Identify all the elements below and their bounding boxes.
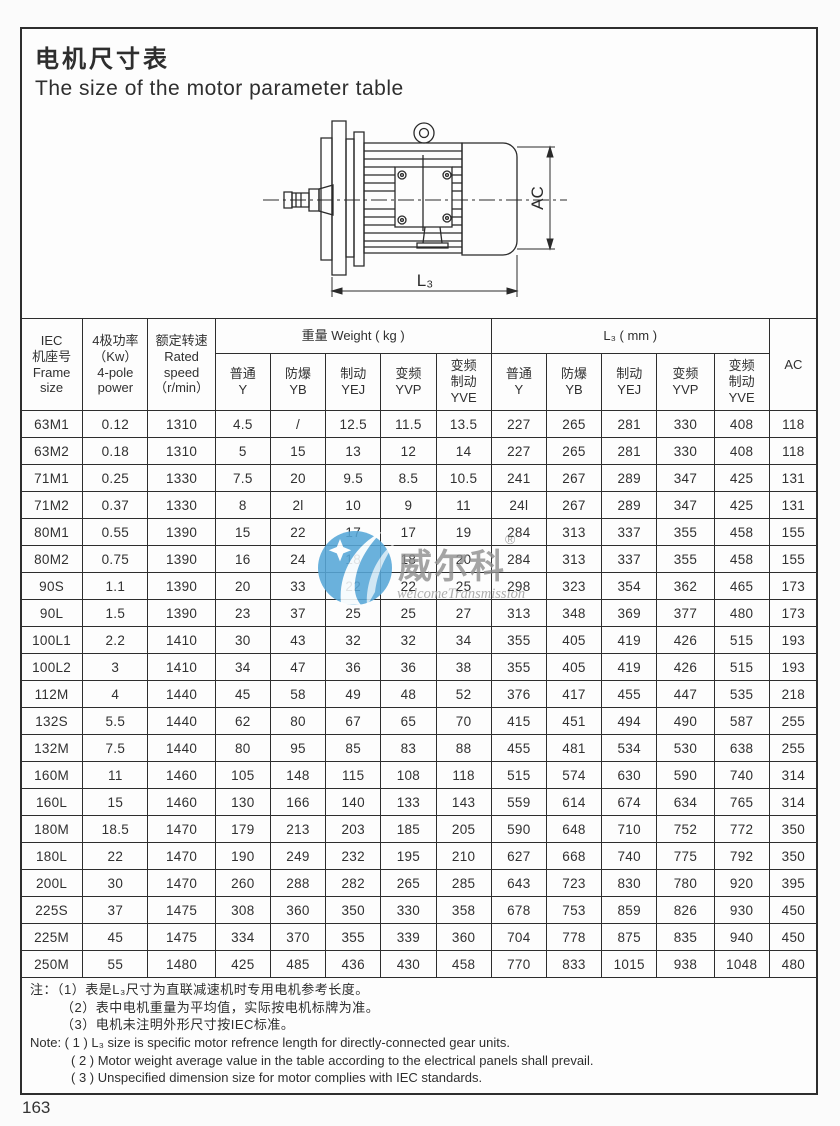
value-cell: 8.5 xyxy=(381,465,436,492)
value-cell: 752 xyxy=(657,816,714,843)
value-cell: 323 xyxy=(546,573,601,600)
lifting-eye-icon xyxy=(414,123,434,143)
value-cell: 678 xyxy=(491,897,546,924)
value-cell: 1390 xyxy=(148,519,215,546)
value-cell: 179 xyxy=(215,816,270,843)
table-body: 63M10.1213104.5/12.511.513.5227265281330… xyxy=(21,411,818,978)
value-cell: 458 xyxy=(714,519,769,546)
frame-size-cell: 180L xyxy=(21,843,83,870)
value-cell: 458 xyxy=(714,546,769,573)
value-cell: 227 xyxy=(491,438,546,465)
motor-flange xyxy=(321,121,364,275)
note-cn-2: （2）表中电机重量为平均值，实际按电机标牌为准。 xyxy=(30,999,810,1017)
header-l3-yej: 制动 YEJ xyxy=(602,354,657,411)
header-l3-yve: 变频 制动 YVE xyxy=(714,354,769,411)
value-cell: 330 xyxy=(657,411,714,438)
frame-size-cell: 132S xyxy=(21,708,83,735)
frame-size-cell: 90S xyxy=(21,573,83,600)
value-cell: 155 xyxy=(769,519,817,546)
value-cell: 360 xyxy=(270,897,325,924)
value-cell: 1440 xyxy=(148,681,215,708)
value-cell: 480 xyxy=(714,600,769,627)
value-cell: 227 xyxy=(491,411,546,438)
value-cell: 1310 xyxy=(148,411,215,438)
value-cell: 118 xyxy=(436,762,491,789)
value-cell: 355 xyxy=(491,627,546,654)
value-cell: 7.5 xyxy=(83,735,148,762)
value-cell: 284 xyxy=(491,546,546,573)
value-cell: 362 xyxy=(657,573,714,600)
value-cell: 1460 xyxy=(148,789,215,816)
value-cell: 24l xyxy=(491,492,546,519)
value-cell: 25 xyxy=(436,573,491,600)
value-cell: 1330 xyxy=(148,465,215,492)
value-cell: 143 xyxy=(436,789,491,816)
value-cell: 0.55 xyxy=(83,519,148,546)
value-cell: 9.5 xyxy=(326,465,381,492)
value-cell: 330 xyxy=(657,438,714,465)
value-cell: 33 xyxy=(270,573,325,600)
value-cell: 232 xyxy=(326,843,381,870)
table-row: 180L221470190249232195210627668740775792… xyxy=(21,843,818,870)
value-cell: 284 xyxy=(491,519,546,546)
value-cell: 740 xyxy=(602,843,657,870)
value-cell: 376 xyxy=(491,681,546,708)
value-cell: 938 xyxy=(657,951,714,978)
value-cell: 13 xyxy=(326,438,381,465)
value-cell: 95 xyxy=(270,735,325,762)
header-speed: 额定转速 Rated speed （r/min） xyxy=(148,319,215,411)
value-cell: 15 xyxy=(270,438,325,465)
value-cell: 405 xyxy=(546,654,601,681)
value-cell: 148 xyxy=(270,762,325,789)
value-cell: 648 xyxy=(546,816,601,843)
value-cell: 590 xyxy=(657,762,714,789)
value-cell: 314 xyxy=(769,762,817,789)
value-cell: 339 xyxy=(381,924,436,951)
value-cell: 32 xyxy=(326,627,381,654)
value-cell: 426 xyxy=(657,627,714,654)
value-cell: 0.12 xyxy=(83,411,148,438)
value-cell: 282 xyxy=(326,870,381,897)
value-cell: 826 xyxy=(657,897,714,924)
frame-size-cell: 225M xyxy=(21,924,83,951)
value-cell: 45 xyxy=(83,924,148,951)
value-cell: 166 xyxy=(270,789,325,816)
value-cell: 313 xyxy=(491,600,546,627)
value-cell: 0.75 xyxy=(83,546,148,573)
value-cell: 32 xyxy=(381,627,436,654)
table-row: 132M7.514408095858388455481534530638255 xyxy=(21,735,818,762)
table-row: 90S1.113902033222225298323354362465173 xyxy=(21,573,818,600)
value-cell: 614 xyxy=(546,789,601,816)
value-cell: 710 xyxy=(602,816,657,843)
value-cell: 20 xyxy=(270,465,325,492)
value-cell: 36 xyxy=(381,654,436,681)
value-cell: 289 xyxy=(602,492,657,519)
value-cell: 920 xyxy=(714,870,769,897)
value-cell: 354 xyxy=(602,573,657,600)
value-cell: 255 xyxy=(769,735,817,762)
value-cell: 530 xyxy=(657,735,714,762)
frame-size-cell: 160M xyxy=(21,762,83,789)
value-cell: 419 xyxy=(602,627,657,654)
table-row: 250M551480425485436430458770833101593810… xyxy=(21,951,818,978)
value-cell: 559 xyxy=(491,789,546,816)
value-cell: 249 xyxy=(270,843,325,870)
value-cell: 27 xyxy=(436,600,491,627)
value-cell: 1470 xyxy=(148,816,215,843)
value-cell: 14 xyxy=(436,438,491,465)
page-title: 电机尺寸表 xyxy=(35,39,816,74)
value-cell: 313 xyxy=(546,546,601,573)
value-cell: 118 xyxy=(769,411,817,438)
value-cell: 314 xyxy=(769,789,817,816)
value-cell: 193 xyxy=(769,627,817,654)
value-cell: 133 xyxy=(381,789,436,816)
value-cell: 62 xyxy=(215,708,270,735)
value-cell: 281 xyxy=(602,438,657,465)
value-cell: 195 xyxy=(381,843,436,870)
value-cell: 451 xyxy=(546,708,601,735)
frame-size-cell: 180M xyxy=(21,816,83,843)
value-cell: 450 xyxy=(769,924,817,951)
value-cell: 38 xyxy=(436,654,491,681)
value-cell: 415 xyxy=(491,708,546,735)
value-cell: 83 xyxy=(381,735,436,762)
value-cell: 334 xyxy=(215,924,270,951)
frame-size-cell: 100L1 xyxy=(21,627,83,654)
value-cell: 298 xyxy=(491,573,546,600)
frame-size-cell: 80M2 xyxy=(21,546,83,573)
frame-size-cell: 100L2 xyxy=(21,654,83,681)
value-cell: 265 xyxy=(546,411,601,438)
motor-end-cap xyxy=(462,143,517,255)
header-weight-yej: 制动 YEJ xyxy=(326,354,381,411)
value-cell: 308 xyxy=(215,897,270,924)
value-cell: 185 xyxy=(381,816,436,843)
value-cell: 1480 xyxy=(148,951,215,978)
value-cell: 58 xyxy=(270,681,325,708)
value-cell: 4 xyxy=(83,681,148,708)
frame-size-cell: 71M1 xyxy=(21,465,83,492)
value-cell: 425 xyxy=(714,465,769,492)
value-cell: 1470 xyxy=(148,870,215,897)
frame-size-cell: 112M xyxy=(21,681,83,708)
value-cell: 480 xyxy=(769,951,817,978)
table-row: 100L12.214103043323234355405419426515193 xyxy=(21,627,818,654)
value-cell: 330 xyxy=(381,897,436,924)
value-cell: 210 xyxy=(436,843,491,870)
value-cell: 355 xyxy=(326,924,381,951)
value-cell: 241 xyxy=(491,465,546,492)
header-l3-yvp: 变频 YVP xyxy=(657,354,714,411)
value-cell: 772 xyxy=(714,816,769,843)
value-cell: 430 xyxy=(381,951,436,978)
note-cn-3: （3）电机未注明外形尺寸按IEC标准。 xyxy=(30,1016,810,1034)
frame-size-cell: 132M xyxy=(21,735,83,762)
value-cell: 267 xyxy=(546,492,601,519)
value-cell: 19 xyxy=(436,519,491,546)
value-cell: 436 xyxy=(326,951,381,978)
value-cell: 778 xyxy=(546,924,601,951)
value-cell: 458 xyxy=(436,951,491,978)
value-cell: 255 xyxy=(769,708,817,735)
dimension-l3: L₃ xyxy=(332,255,517,297)
value-cell: 337 xyxy=(602,546,657,573)
value-cell: 16 xyxy=(215,546,270,573)
value-cell: 13.5 xyxy=(436,411,491,438)
value-cell: 80 xyxy=(215,735,270,762)
value-cell: 643 xyxy=(491,870,546,897)
dimension-ac: AC xyxy=(517,147,555,249)
value-cell: 369 xyxy=(602,600,657,627)
motor-body xyxy=(364,143,462,253)
value-cell: 395 xyxy=(769,870,817,897)
value-cell: 265 xyxy=(546,438,601,465)
value-cell: 1460 xyxy=(148,762,215,789)
value-cell: 22 xyxy=(270,519,325,546)
table-row: 200L301470260288282265285643723830780920… xyxy=(21,870,818,897)
value-cell: 205 xyxy=(436,816,491,843)
value-cell: 18 xyxy=(381,546,436,573)
value-cell: 1330 xyxy=(148,492,215,519)
value-cell: 377 xyxy=(657,600,714,627)
value-cell: 370 xyxy=(270,924,325,951)
value-cell: 22 xyxy=(83,843,148,870)
value-cell: 203 xyxy=(326,816,381,843)
value-cell: 285 xyxy=(436,870,491,897)
value-cell: 1410 xyxy=(148,654,215,681)
value-cell: 1470 xyxy=(148,843,215,870)
value-cell: 11 xyxy=(436,492,491,519)
value-cell: 630 xyxy=(602,762,657,789)
value-cell: 115 xyxy=(326,762,381,789)
header-weight-y: 普通 Y xyxy=(215,354,270,411)
value-cell: 2.2 xyxy=(83,627,148,654)
value-cell: 131 xyxy=(769,492,817,519)
value-cell: 313 xyxy=(546,519,601,546)
value-cell: 408 xyxy=(714,411,769,438)
value-cell: 88 xyxy=(436,735,491,762)
value-cell: 587 xyxy=(714,708,769,735)
value-cell: 140 xyxy=(326,789,381,816)
value-cell: 638 xyxy=(714,735,769,762)
frame-size-cell: 90L xyxy=(21,600,83,627)
value-cell: 37 xyxy=(83,897,148,924)
table-row: 80M10.5513901522171719284313337355458155 xyxy=(21,519,818,546)
value-cell: 55 xyxy=(83,951,148,978)
frame-size-cell: 71M2 xyxy=(21,492,83,519)
page-frame: 电机尺寸表 The size of the motor parameter ta… xyxy=(20,27,818,1095)
value-cell: 23 xyxy=(215,600,270,627)
value-cell: 118 xyxy=(769,438,817,465)
value-cell: 18 xyxy=(326,546,381,573)
value-cell: 515 xyxy=(714,654,769,681)
value-cell: 213 xyxy=(270,816,325,843)
value-cell: 494 xyxy=(602,708,657,735)
value-cell: 265 xyxy=(381,870,436,897)
value-cell: 833 xyxy=(546,951,601,978)
value-cell: 1390 xyxy=(148,573,215,600)
value-cell: 9 xyxy=(381,492,436,519)
value-cell: 590 xyxy=(491,816,546,843)
header-weight-group: 重量 Weight ( kg ) xyxy=(215,319,491,354)
value-cell: 267 xyxy=(546,465,601,492)
motor-parameter-table: IEC 机座号 Frame size 4极功率 （Kw） 4-pole powe… xyxy=(20,318,818,978)
value-cell: 355 xyxy=(491,654,546,681)
terminal-box xyxy=(395,155,452,231)
note-en-2: ( 2 ) Motor weight average value in the … xyxy=(30,1052,810,1070)
value-cell: 24 xyxy=(270,546,325,573)
value-cell: 875 xyxy=(602,924,657,951)
motor-drawing: AC L₃ xyxy=(255,105,595,317)
value-cell: 17 xyxy=(381,519,436,546)
frame-size-cell: 200L xyxy=(21,870,83,897)
value-cell: 1390 xyxy=(148,546,215,573)
header-l3-y: 普通 Y xyxy=(491,354,546,411)
value-cell: 12 xyxy=(381,438,436,465)
value-cell: 515 xyxy=(491,762,546,789)
header-l3-group: L₃ ( mm ) xyxy=(491,319,769,354)
table-row: 112M414404558494852376417455447535218 xyxy=(21,681,818,708)
value-cell: 20 xyxy=(215,573,270,600)
value-cell: 1475 xyxy=(148,924,215,951)
value-cell: 940 xyxy=(714,924,769,951)
value-cell: 173 xyxy=(769,573,817,600)
value-cell: 30 xyxy=(215,627,270,654)
value-cell: 408 xyxy=(714,438,769,465)
value-cell: 830 xyxy=(602,870,657,897)
value-cell: 465 xyxy=(714,573,769,600)
value-cell: 70 xyxy=(436,708,491,735)
value-cell: 674 xyxy=(602,789,657,816)
header-weight-yb: 防爆 YB xyxy=(270,354,325,411)
dimension-l3-label: L₃ xyxy=(417,271,433,290)
value-cell: 704 xyxy=(491,924,546,951)
value-cell: 350 xyxy=(769,843,817,870)
value-cell: 515 xyxy=(714,627,769,654)
value-cell: 723 xyxy=(546,870,601,897)
frame-size-cell: 63M2 xyxy=(21,438,83,465)
table-row: 180M18.514701792132031852055906487107527… xyxy=(21,816,818,843)
value-cell: 52 xyxy=(436,681,491,708)
value-cell: 0.18 xyxy=(83,438,148,465)
page-subtitle: The size of the motor parameter table xyxy=(35,77,816,101)
value-cell: 930 xyxy=(714,897,769,924)
value-cell: 859 xyxy=(602,897,657,924)
value-cell: 1475 xyxy=(148,897,215,924)
value-cell: 780 xyxy=(657,870,714,897)
value-cell: 1440 xyxy=(148,708,215,735)
value-cell: 358 xyxy=(436,897,491,924)
value-cell: 419 xyxy=(602,654,657,681)
value-cell: 2l xyxy=(270,492,325,519)
value-cell: 18.5 xyxy=(83,816,148,843)
table-row: 80M20.7513901624181820284313337355458155 xyxy=(21,546,818,573)
value-cell: 5 xyxy=(215,438,270,465)
value-cell: 65 xyxy=(381,708,436,735)
frame-size-cell: 80M1 xyxy=(21,519,83,546)
note-en-3: ( 3 ) Unspecified dimension size for mot… xyxy=(30,1069,810,1087)
value-cell: 105 xyxy=(215,762,270,789)
value-cell: 260 xyxy=(215,870,270,897)
frame-size-cell: 250M xyxy=(21,951,83,978)
value-cell: 45 xyxy=(215,681,270,708)
table-row: 63M20.181310515131214227265281330408118 xyxy=(21,438,818,465)
notes-block: 注：（1）表是L₃尺寸为直联减速机时专用电机参考长度。 （2）表中电机重量为平均… xyxy=(30,981,810,1087)
value-cell: 574 xyxy=(546,762,601,789)
value-cell: 22 xyxy=(326,573,381,600)
table-row: 63M10.1213104.5/12.511.513.5227265281330… xyxy=(21,411,818,438)
value-cell: 481 xyxy=(546,735,601,762)
value-cell: 417 xyxy=(546,681,601,708)
value-cell: 347 xyxy=(657,465,714,492)
header-ac: AC xyxy=(769,319,817,411)
table-row: 90L1.513902337252527313348369377480173 xyxy=(21,600,818,627)
value-cell: 130 xyxy=(215,789,270,816)
value-cell: 1310 xyxy=(148,438,215,465)
value-cell: 490 xyxy=(657,708,714,735)
value-cell: 288 xyxy=(270,870,325,897)
value-cell: 740 xyxy=(714,762,769,789)
value-cell: 155 xyxy=(769,546,817,573)
table-row: 71M10.2513307.5209.58.510.52412672893474… xyxy=(21,465,818,492)
value-cell: 425 xyxy=(215,951,270,978)
value-cell: 43 xyxy=(270,627,325,654)
value-cell: 1015 xyxy=(602,951,657,978)
value-cell: 0.25 xyxy=(83,465,148,492)
header-weight-yvp: 变频 YVP xyxy=(381,354,436,411)
value-cell: 173 xyxy=(769,600,817,627)
value-cell: 36 xyxy=(326,654,381,681)
header-power: 4极功率 （Kw） 4-pole power xyxy=(83,319,148,411)
value-cell: 131 xyxy=(769,465,817,492)
value-cell: 193 xyxy=(769,654,817,681)
dimension-ac-label: AC xyxy=(528,186,547,210)
value-cell: 792 xyxy=(714,843,769,870)
value-cell: 281 xyxy=(602,411,657,438)
table-row: 71M20.37133082l1091124l267289347425131 xyxy=(21,492,818,519)
value-cell: 20 xyxy=(436,546,491,573)
frame-size-cell: 225S xyxy=(21,897,83,924)
value-cell: 337 xyxy=(602,519,657,546)
note-en-1: Note: ( 1 ) L₃ size is specific motor re… xyxy=(30,1034,810,1052)
value-cell: 450 xyxy=(769,897,817,924)
value-cell: 770 xyxy=(491,951,546,978)
value-cell: 15 xyxy=(215,519,270,546)
value-cell: 350 xyxy=(326,897,381,924)
value-cell: 12.5 xyxy=(326,411,381,438)
value-cell: 1440 xyxy=(148,735,215,762)
table-row: 160L151460130166140133143559614674634765… xyxy=(21,789,818,816)
value-cell: 535 xyxy=(714,681,769,708)
header-l3-yb: 防爆 YB xyxy=(546,354,601,411)
value-cell: 218 xyxy=(769,681,817,708)
value-cell: 47 xyxy=(270,654,325,681)
value-cell: 455 xyxy=(491,735,546,762)
value-cell: 0.37 xyxy=(83,492,148,519)
table-row: 160M111460105148115108118515574630590740… xyxy=(21,762,818,789)
frame-size-cell: 63M1 xyxy=(21,411,83,438)
value-cell: 835 xyxy=(657,924,714,951)
value-cell: 25 xyxy=(326,600,381,627)
value-cell: 37 xyxy=(270,600,325,627)
value-cell: 10.5 xyxy=(436,465,491,492)
value-cell: 108 xyxy=(381,762,436,789)
value-cell: 11.5 xyxy=(381,411,436,438)
value-cell: 1390 xyxy=(148,600,215,627)
